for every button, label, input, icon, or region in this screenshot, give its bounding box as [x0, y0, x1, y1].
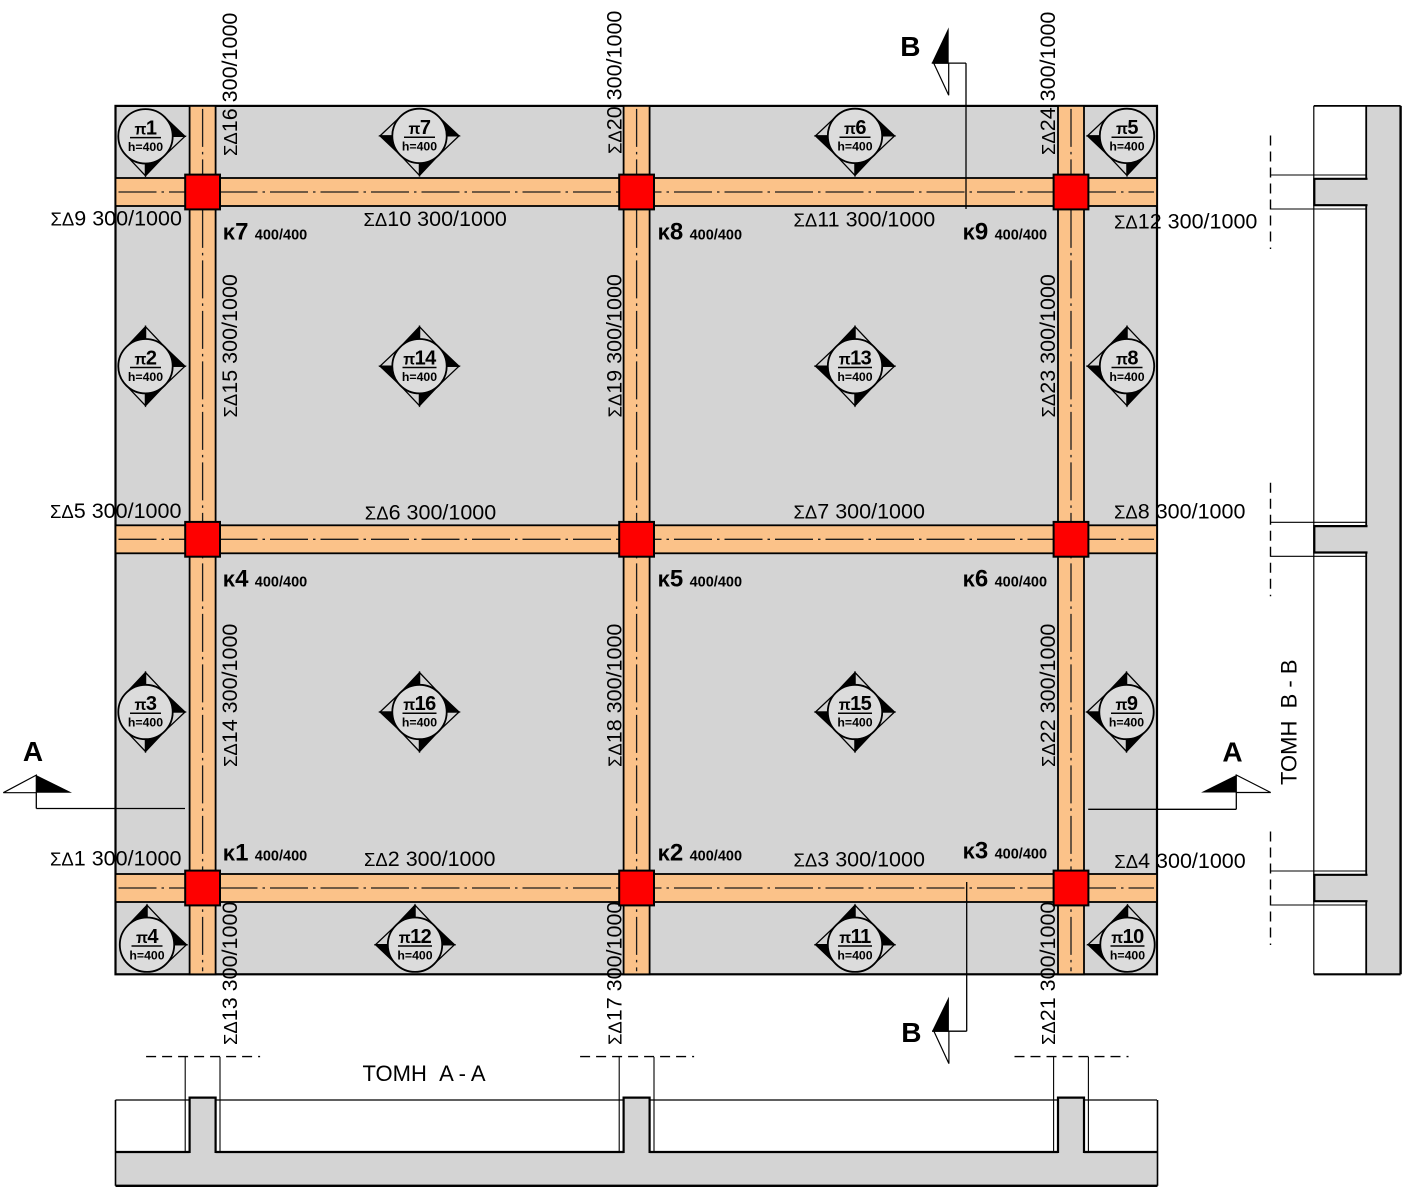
svg-text:ΣΔ14 300/1000: ΣΔ14 300/1000: [218, 624, 242, 767]
svg-text:π6: π6: [844, 117, 866, 139]
svg-text:h=400: h=400: [128, 140, 163, 154]
svg-text:ΣΔ4 300/1000: ΣΔ4 300/1000: [1114, 849, 1245, 873]
svg-text:π16: π16: [403, 693, 436, 715]
svg-text:h=400: h=400: [837, 716, 872, 730]
svg-text:π12: π12: [399, 926, 432, 948]
svg-text:π8: π8: [1116, 347, 1138, 369]
svg-text:400/400: 400/400: [255, 228, 307, 244]
svg-text:ΣΔ11 300/1000: ΣΔ11 300/1000: [794, 207, 936, 231]
svg-text:B: B: [900, 31, 920, 62]
svg-text:π14: π14: [403, 347, 437, 369]
svg-text:π10: π10: [1111, 926, 1144, 948]
svg-text:h=400: h=400: [128, 716, 163, 730]
svg-text:ΣΔ21 300/1000: ΣΔ21 300/1000: [1036, 902, 1060, 1045]
svg-text:ΣΔ1 300/1000: ΣΔ1 300/1000: [50, 847, 181, 871]
svg-text:π15: π15: [839, 693, 872, 715]
svg-text:ΣΔ23 300/1000: ΣΔ23 300/1000: [1036, 274, 1060, 417]
svg-text:ΣΔ16 300/1000: ΣΔ16 300/1000: [218, 13, 242, 156]
svg-text:ΣΔ7 300/1000: ΣΔ7 300/1000: [794, 500, 925, 524]
svg-text:h=400: h=400: [1109, 716, 1144, 730]
svg-text:h=400: h=400: [128, 370, 163, 384]
svg-text:ΣΔ8 300/1000: ΣΔ8 300/1000: [1114, 500, 1245, 524]
svg-text:π13: π13: [839, 347, 872, 369]
svg-text:400/400: 400/400: [995, 847, 1047, 863]
svg-text:h=400: h=400: [402, 370, 437, 384]
svg-text:h=400: h=400: [402, 140, 437, 154]
svg-text:κ9: κ9: [963, 219, 989, 246]
svg-text:κ7: κ7: [223, 219, 249, 246]
svg-text:κ3: κ3: [963, 838, 989, 865]
svg-text:400/400: 400/400: [995, 228, 1047, 244]
svg-text:ΣΔ22 300/1000: ΣΔ22 300/1000: [1036, 624, 1060, 767]
svg-text:π1: π1: [135, 117, 157, 139]
svg-text:π9: π9: [1116, 693, 1138, 715]
svg-text:h=400: h=400: [397, 948, 432, 962]
svg-text:400/400: 400/400: [690, 575, 742, 591]
svg-text:B: B: [901, 1017, 921, 1048]
svg-text:ΣΔ15 300/1000: ΣΔ15 300/1000: [218, 274, 242, 417]
svg-text:κ8: κ8: [658, 219, 684, 246]
svg-text:π5: π5: [1116, 117, 1138, 139]
svg-text:ΤΟΜΗ B - B: ΤΟΜΗ B - B: [1277, 660, 1302, 786]
svg-text:400/400: 400/400: [690, 849, 742, 865]
svg-text:κ6: κ6: [963, 566, 989, 593]
svg-text:h=400: h=400: [1109, 370, 1144, 384]
svg-text:ΣΔ13 300/1000: ΣΔ13 300/1000: [218, 902, 242, 1045]
svg-text:κ2: κ2: [658, 840, 684, 867]
svg-text:h=400: h=400: [837, 948, 872, 962]
svg-text:ΣΔ20 300/1000: ΣΔ20 300/1000: [603, 11, 627, 154]
svg-text:κ1: κ1: [223, 840, 249, 867]
svg-text:κ5: κ5: [658, 566, 684, 593]
svg-text:A: A: [23, 736, 43, 767]
svg-text:ΣΔ24 300/1000: ΣΔ24 300/1000: [1036, 12, 1060, 155]
svg-text:π7: π7: [409, 117, 431, 139]
svg-text:400/400: 400/400: [255, 575, 307, 591]
svg-text:A: A: [1222, 736, 1242, 767]
svg-text:κ4: κ4: [223, 566, 249, 593]
svg-text:400/400: 400/400: [255, 849, 307, 865]
svg-text:ΣΔ10 300/1000: ΣΔ10 300/1000: [364, 207, 507, 231]
svg-text:400/400: 400/400: [690, 228, 742, 244]
svg-text:ΤΟΜΗ A - A: ΤΟΜΗ A - A: [363, 1061, 486, 1086]
svg-text:π4: π4: [136, 926, 159, 948]
svg-text:h=400: h=400: [837, 140, 872, 154]
svg-text:ΣΔ19 300/1000: ΣΔ19 300/1000: [603, 274, 627, 417]
svg-text:h=400: h=400: [129, 948, 164, 962]
svg-text:h=400: h=400: [1110, 948, 1145, 962]
svg-text:ΣΔ12 300/1000: ΣΔ12 300/1000: [1114, 210, 1257, 234]
svg-text:400/400: 400/400: [995, 575, 1047, 591]
svg-text:π2: π2: [135, 347, 157, 369]
svg-text:ΣΔ9 300/1000: ΣΔ9 300/1000: [51, 207, 182, 231]
svg-text:ΣΔ6 300/1000: ΣΔ6 300/1000: [365, 501, 496, 525]
svg-text:π3: π3: [135, 693, 157, 715]
svg-text:ΣΔ17 300/1000: ΣΔ17 300/1000: [603, 902, 627, 1045]
svg-text:h=400: h=400: [1109, 140, 1144, 154]
svg-text:ΣΔ3 300/1000: ΣΔ3 300/1000: [794, 848, 925, 872]
svg-text:ΣΔ2 300/1000: ΣΔ2 300/1000: [364, 847, 495, 871]
svg-text:ΣΔ5 300/1000: ΣΔ5 300/1000: [50, 499, 181, 523]
svg-text:h=400: h=400: [402, 716, 437, 730]
svg-text:h=400: h=400: [837, 370, 872, 384]
svg-text:ΣΔ18 300/1000: ΣΔ18 300/1000: [603, 624, 627, 767]
svg-text:π11: π11: [839, 926, 871, 948]
